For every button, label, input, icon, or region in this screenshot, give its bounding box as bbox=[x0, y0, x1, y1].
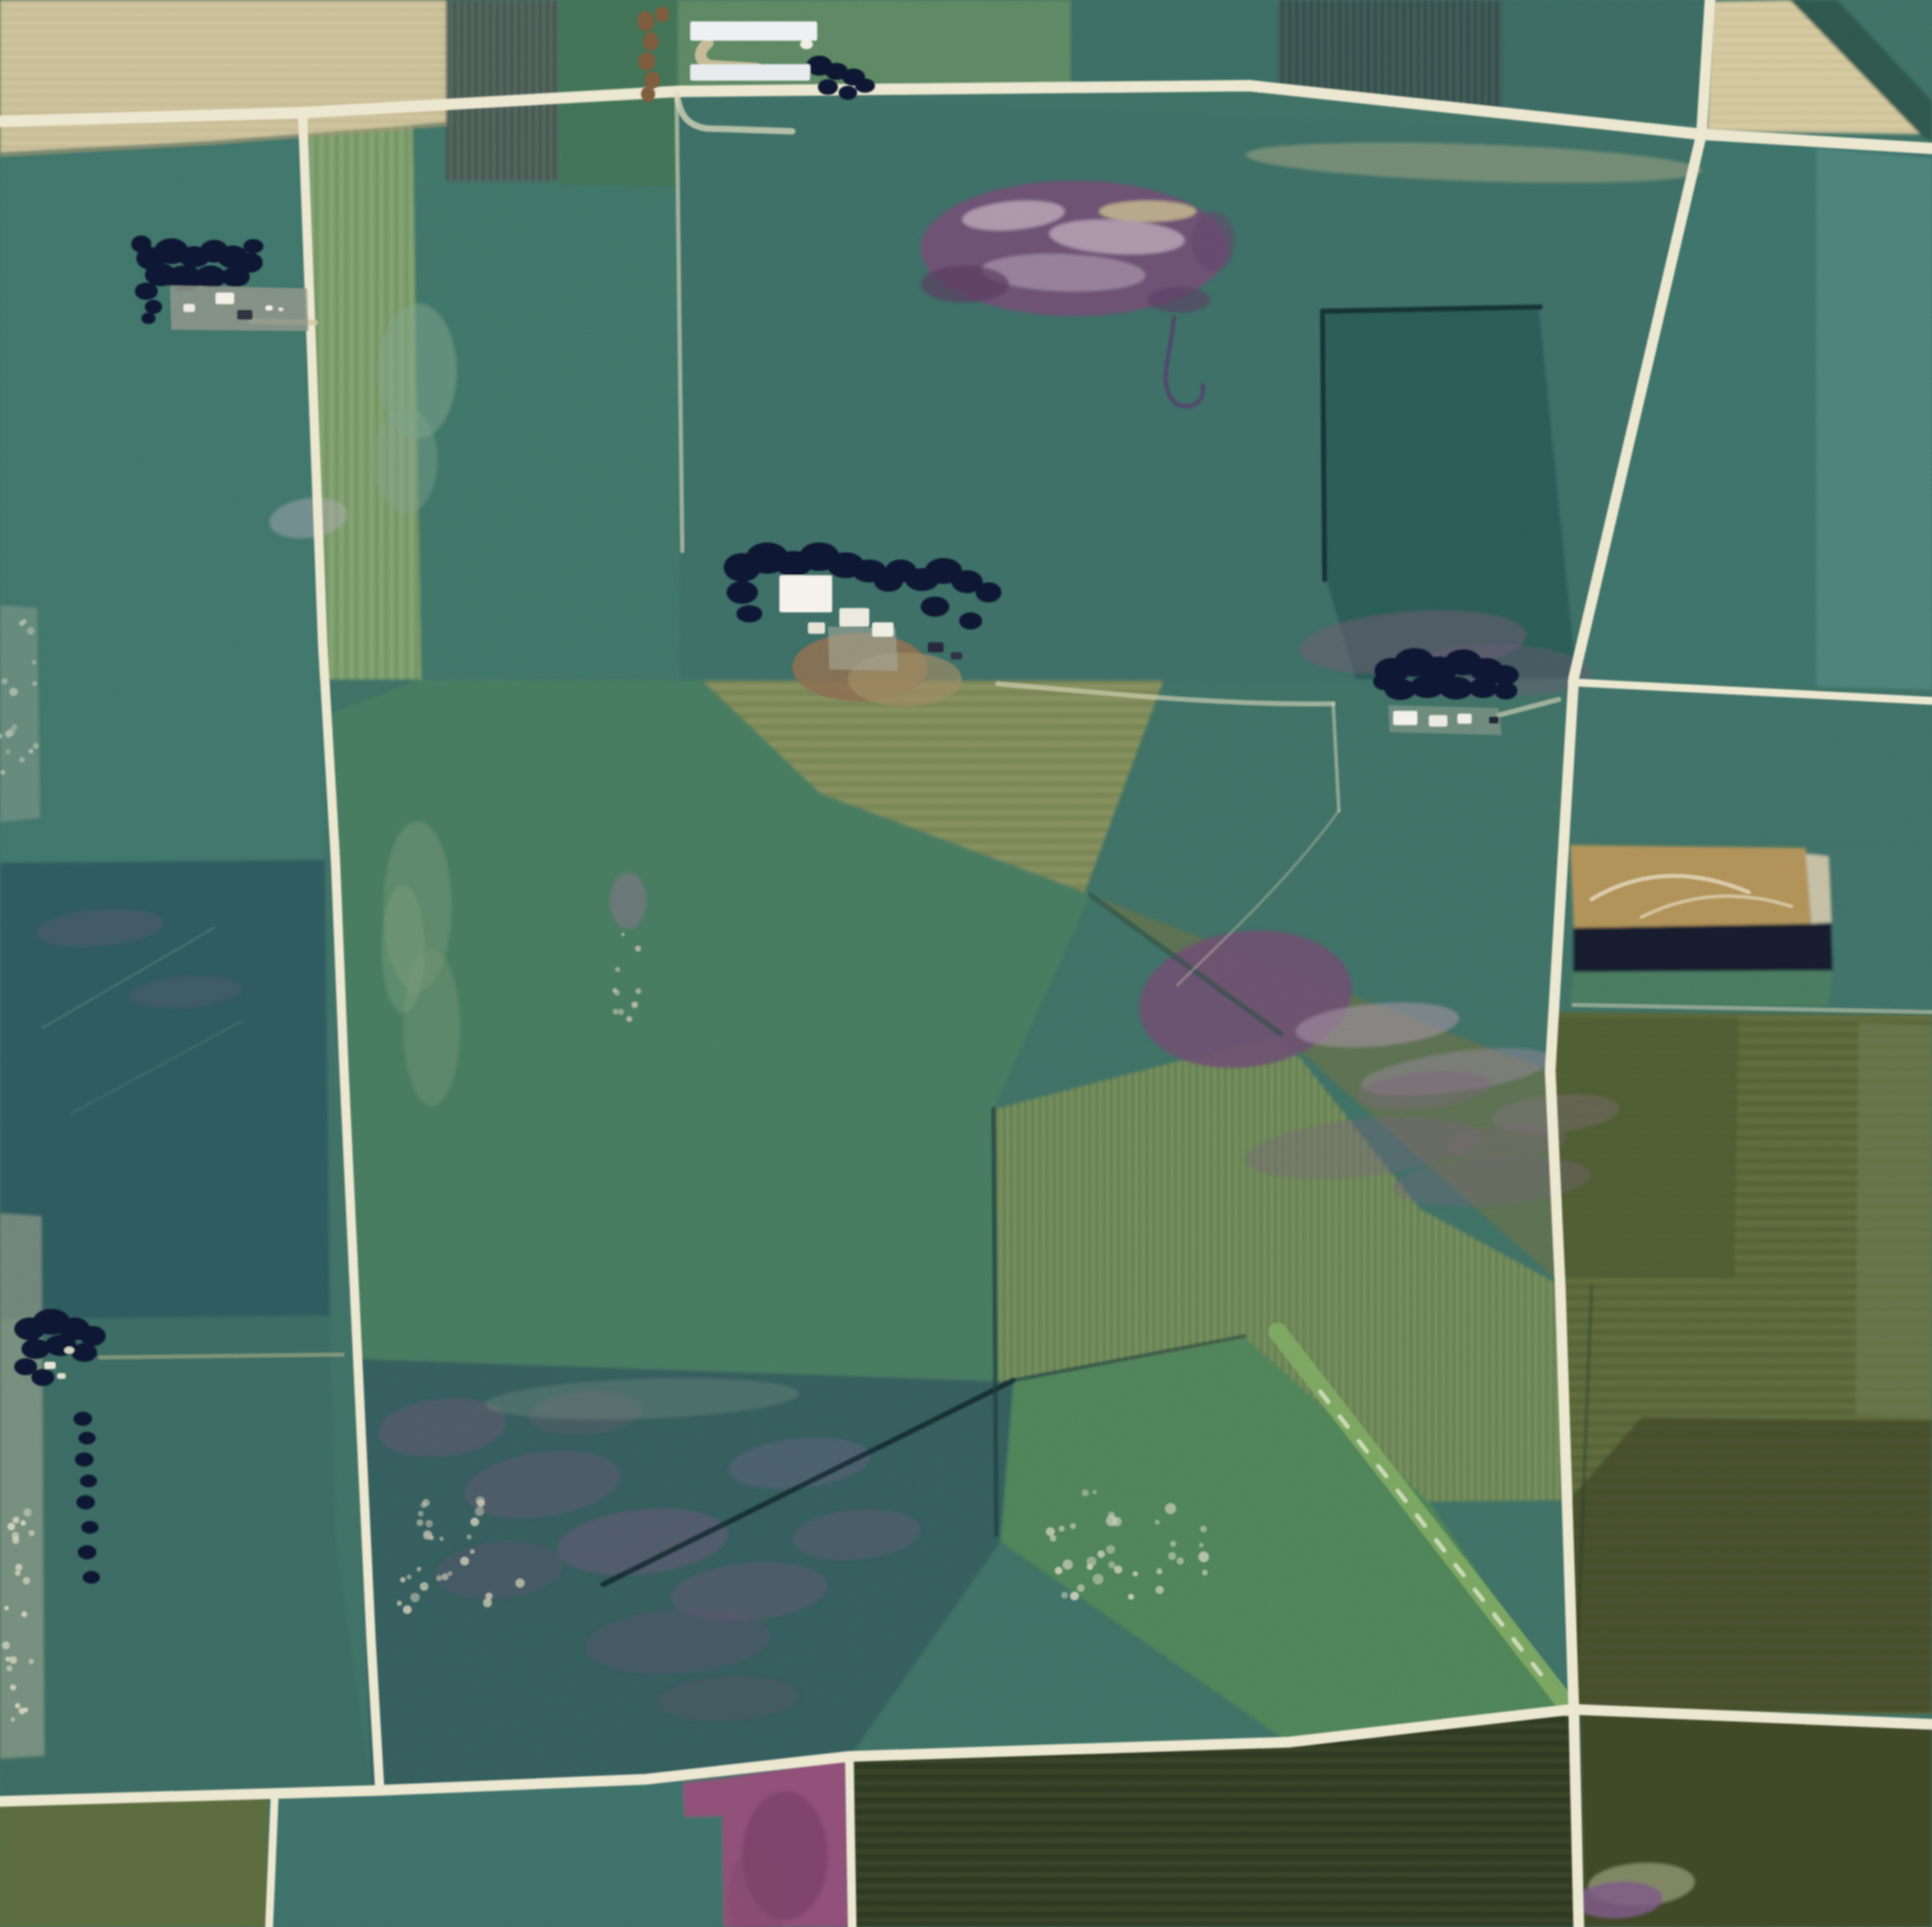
screenshot-root bbox=[0, 0, 1932, 1927]
aerial-photo-canvas bbox=[0, 0, 1932, 1927]
film-grain-overlay bbox=[0, 0, 1932, 1927]
